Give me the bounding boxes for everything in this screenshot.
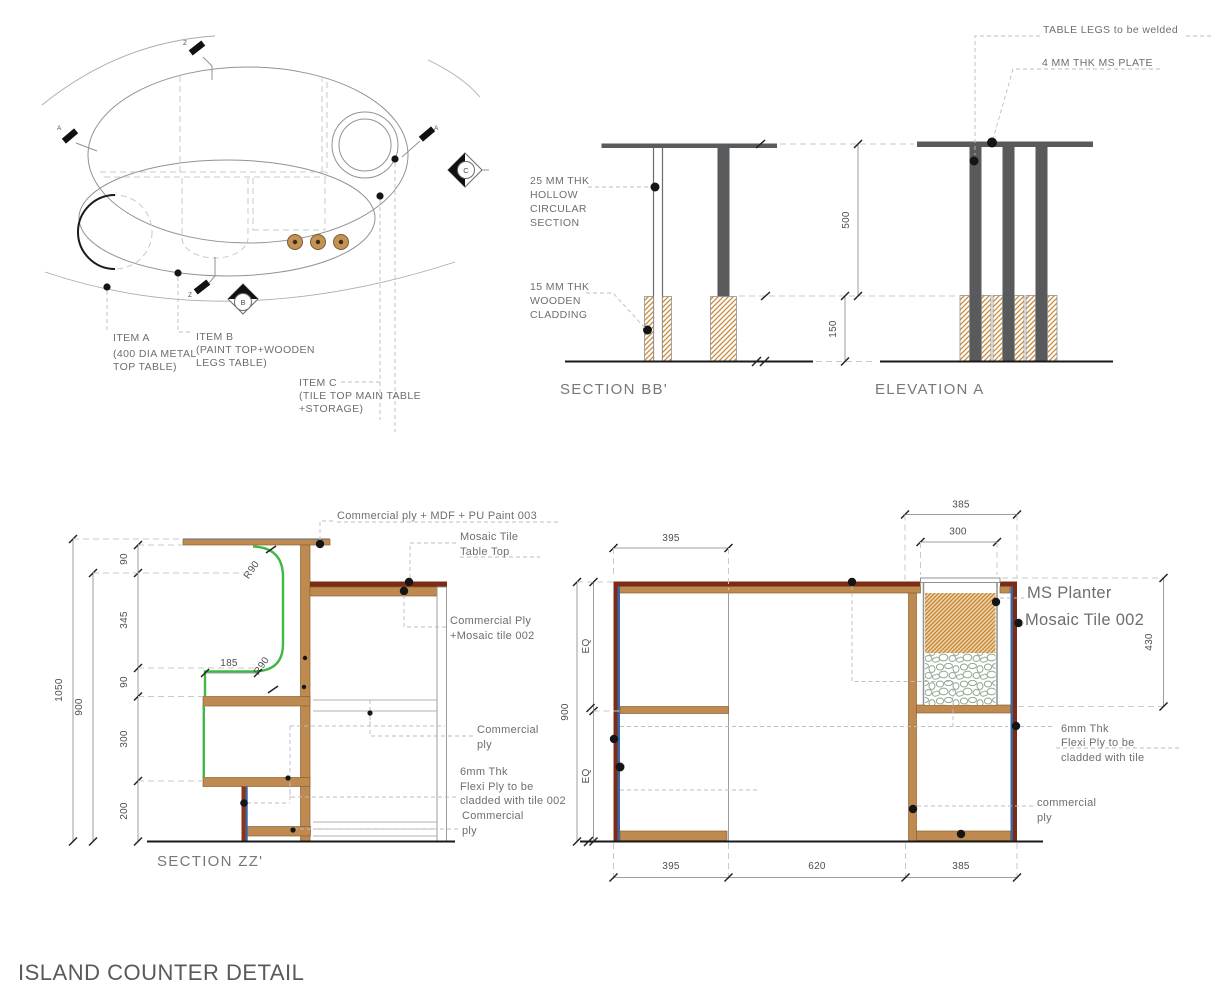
item-b-line2: (PAINT TOP+WOODEN — [196, 344, 315, 356]
top-note: Commercial ply + MDF + PU Paint 003 — [337, 510, 537, 522]
commercial-ply-2: ply — [477, 739, 492, 751]
dim-620: 620 — [808, 861, 826, 872]
flexi-note-2: Flexi Ply to be — [1061, 737, 1135, 749]
dim-eq-bottom: EQ — [581, 768, 592, 783]
elevation-a: TABLE LEGS to be welded 4 MM THK MS PLAT… — [875, 24, 1211, 398]
wooden-cladding — [993, 296, 1003, 362]
island-counter-drawing: Z A A Z C B — [0, 0, 1211, 1000]
item-a-callout: ITEM A (400 DIA METAL TOP TABLE) — [113, 332, 197, 373]
item-b-line3: LEGS TABLE) — [196, 357, 267, 369]
counter-top-ply — [310, 587, 437, 596]
wooden-cladding — [711, 297, 737, 362]
dim-150: 150 — [828, 320, 839, 338]
item-a-title: ITEM A — [113, 332, 150, 344]
dim-385-bottom: 385 — [952, 861, 970, 872]
plan-view: Z A A Z C B — [42, 36, 489, 432]
marker-b-label: B — [240, 298, 245, 307]
item-c-title: ITEM C — [299, 377, 337, 389]
section-bubble-c: C — [448, 153, 489, 187]
dim-385-top: 385 — [952, 500, 970, 511]
commercial-ply2-2: ply — [462, 825, 477, 837]
commercial-mosaic-2: +Mosaic tile 002 — [450, 630, 535, 642]
ms-planter — [921, 578, 1001, 705]
radius-bottom: R90 — [252, 655, 272, 677]
commercial-ply2-1: Commercial — [462, 810, 524, 822]
mosaic-note-2: Table Top — [460, 546, 510, 558]
item-c-callout: ITEM C (TILE TOP MAIN TABLE +STORAGE) — [299, 377, 421, 415]
commercial-ply-1: Commercial — [477, 724, 539, 736]
item-b-callout: ITEM B (PAINT TOP+WOODEN LEGS TABLE) — [196, 331, 315, 369]
wooden-cladding — [982, 296, 992, 362]
item-b-title: ITEM B — [196, 331, 233, 343]
side-panel — [437, 587, 447, 842]
left-edge-ply — [618, 587, 621, 842]
right-edge-ply — [1011, 587, 1014, 842]
dim-eq-top: EQ — [581, 638, 592, 653]
drawing-sheet: Z A A Z C B — [0, 0, 1211, 1000]
elevation-a-label: ELEVATION A — [875, 381, 985, 398]
commercial-mosaic-1: Commercial Ply — [450, 615, 531, 627]
table-leg — [970, 147, 982, 361]
radius-top: R90 — [242, 559, 262, 581]
soil-fill — [925, 593, 996, 653]
table-leg — [1003, 147, 1015, 361]
flexi-2: Flexi Ply to be — [460, 781, 534, 793]
tile-note: Mosaic Tile 002 — [1025, 611, 1144, 629]
dim-395-bottom: 395 — [662, 861, 680, 872]
plate-note: 4 MM THK MS PLATE — [1042, 57, 1153, 69]
marker-c-label: C — [463, 166, 469, 175]
hollow-section-note: 25 MM THK HOLLOW CIRCULAR SECTION — [530, 175, 589, 229]
table-top — [917, 142, 1093, 148]
section-flag-a-right: A — [402, 125, 439, 157]
marker-a-label: A — [57, 125, 62, 132]
flexi-note-3: cladded with tile — [1061, 752, 1144, 764]
item-a-line3: TOP TABLE) — [113, 361, 177, 373]
counter-top-tile — [310, 582, 447, 588]
planter-note: MS Planter — [1027, 584, 1112, 602]
svg-text:25 MM THK: 25 MM THK — [530, 175, 589, 187]
item-c-line3: +STORAGE) — [299, 403, 363, 415]
section-bb: 25 MM THK HOLLOW CIRCULAR SECTION 15 MM … — [530, 140, 958, 398]
bottom-shelf — [247, 827, 311, 837]
left-bottom-shelf — [620, 831, 727, 841]
marker-z-label: Z — [188, 292, 192, 299]
dim-300: 300 — [119, 730, 130, 748]
wooden-cladding — [663, 297, 672, 362]
cladding-note: 15 MM THK WOODEN CLADDING — [530, 281, 589, 321]
wooden-cladding — [960, 296, 970, 362]
planter-plan-outer — [332, 112, 398, 178]
dim-430: 430 — [1144, 633, 1155, 651]
counter-top-tile — [614, 582, 921, 587]
dim-90a: 90 — [119, 553, 130, 565]
planter-rim — [921, 578, 1001, 583]
welded-note: TABLE LEGS to be welded — [1043, 24, 1178, 36]
right-mid-shelf — [917, 705, 1011, 713]
svg-text:15 MM THK: 15 MM THK — [530, 281, 589, 293]
section-bb-label: SECTION BB' — [560, 381, 668, 398]
table-leg — [1036, 147, 1048, 361]
svg-text:SECTION: SECTION — [530, 217, 579, 229]
section-zz: R90 R90 1050 900 90 345 90 300 200 185 — [54, 510, 566, 870]
dim-200: 200 — [119, 802, 130, 820]
planter-plan-inner — [339, 119, 391, 171]
post — [909, 593, 917, 841]
wooden-cladding — [1015, 296, 1025, 362]
counter-elevation: 395 385 300 900 EQ EQ 430 — [560, 500, 1180, 882]
dim-900: 900 — [74, 698, 85, 716]
counter-top-ply — [620, 587, 921, 594]
mid-shelf — [203, 697, 310, 707]
table-top — [602, 144, 778, 149]
svg-text:CIRCULAR: CIRCULAR — [530, 203, 587, 215]
section-bubble-b: B — [228, 284, 258, 314]
mosaic-note-1: Mosaic Tile — [460, 531, 518, 543]
raised-table-top — [183, 540, 330, 546]
dim-345: 345 — [119, 611, 130, 629]
left-mid-shelf — [620, 707, 729, 714]
dim-300: 300 — [949, 527, 967, 538]
flexi-1: 6mm Thk — [460, 766, 508, 778]
curved-front-profile — [205, 547, 283, 697]
svg-text:HOLLOW: HOLLOW — [530, 189, 578, 201]
dim-90b: 90 — [119, 676, 130, 688]
lower-shelf — [203, 778, 310, 787]
item-a-line2: (400 DIA METAL — [113, 348, 197, 360]
counter-top-outline — [88, 67, 408, 243]
table-leg — [718, 148, 730, 297]
marker-z-label: Z — [183, 40, 187, 47]
dim-185: 185 — [220, 658, 238, 669]
dim-395-top: 395 — [662, 533, 680, 544]
dim-900: 900 — [560, 703, 571, 721]
wooden-leg-symbols — [288, 235, 349, 250]
wooden-cladding — [1048, 296, 1058, 362]
marker-a-label: A — [434, 125, 439, 132]
dim-500: 500 — [841, 211, 852, 229]
dim-1050: 1050 — [54, 678, 65, 702]
item-c-line2: (TILE TOP MAIN TABLE — [299, 390, 421, 402]
section-flag-z-bottom: Z — [188, 257, 215, 299]
commercial-note-1: commercial — [1037, 797, 1096, 809]
svg-text:WOODEN: WOODEN — [530, 295, 581, 307]
section-zz-label: SECTION ZZ' — [157, 853, 263, 870]
ply-edge — [246, 787, 248, 842]
page-title: ISLAND COUNTER DETAIL — [18, 960, 304, 985]
tile-edge — [242, 787, 246, 842]
flexi-3: cladded with tile 002 — [460, 795, 566, 807]
commercial-note-2: ply — [1037, 812, 1052, 824]
flexi-note-1: 6mm Thk — [1061, 723, 1109, 735]
wooden-cladding — [1026, 296, 1036, 362]
svg-text:CLADDING: CLADDING — [530, 309, 587, 321]
pebble-fill — [925, 653, 996, 705]
